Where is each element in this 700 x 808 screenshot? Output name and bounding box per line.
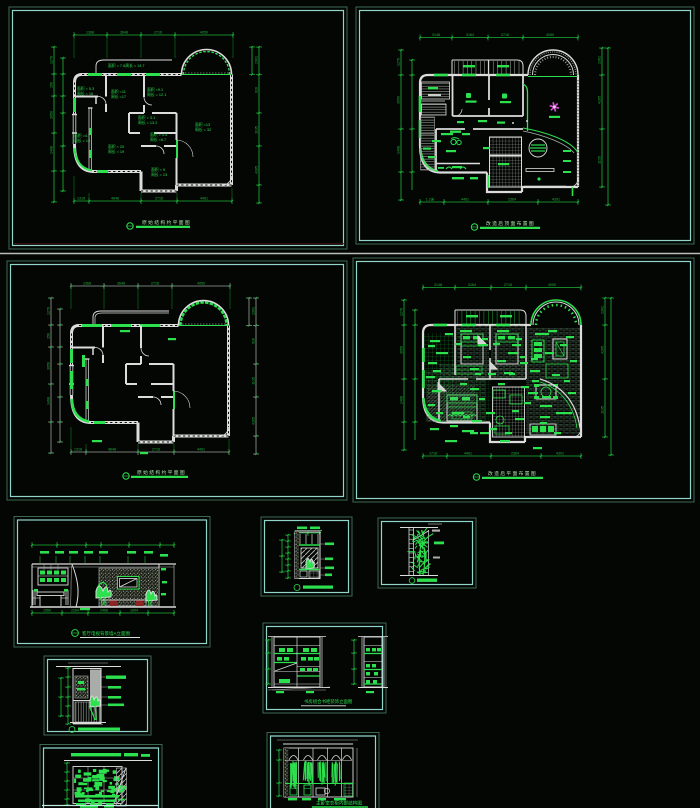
svg-text:面积 =4.7: 面积 =4.7 bbox=[74, 133, 90, 138]
svg-text:2716: 2716 bbox=[501, 33, 509, 37]
svg-text:4165: 4165 bbox=[598, 96, 602, 104]
svg-text:1560: 1560 bbox=[43, 609, 51, 613]
svg-text:3164: 3164 bbox=[466, 33, 474, 37]
svg-text:1135: 1135 bbox=[601, 406, 605, 414]
svg-text:周长 = 19: 周长 = 19 bbox=[108, 149, 124, 154]
svg-text:3050: 3050 bbox=[47, 362, 51, 370]
svg-text:1276: 1276 bbox=[47, 307, 51, 315]
svg-text:2716: 2716 bbox=[504, 283, 512, 287]
svg-text:1468: 1468 bbox=[50, 146, 54, 154]
svg-text:面积 = 4.5: 面积 = 4.5 bbox=[150, 132, 167, 137]
svg-text:4301: 4301 bbox=[556, 452, 564, 456]
svg-text:书房组合书柜装饰立面图: 书房组合书柜装饰立面图 bbox=[304, 698, 353, 705]
svg-text:2361: 2361 bbox=[598, 56, 602, 64]
svg-text:3648: 3648 bbox=[117, 282, 125, 286]
svg-text:3148: 3148 bbox=[434, 283, 442, 287]
svg-text:周长 = 12.1: 周长 = 12.1 bbox=[147, 92, 166, 97]
svg-text:4050: 4050 bbox=[197, 282, 205, 286]
svg-text:1368: 1368 bbox=[86, 31, 94, 35]
svg-text:2716: 2716 bbox=[155, 197, 163, 201]
svg-text:4165: 4165 bbox=[255, 166, 259, 174]
svg-text:4165: 4165 bbox=[252, 417, 256, 425]
svg-text:周长 = 13: 周长 = 13 bbox=[74, 138, 90, 143]
svg-text:2361: 2361 bbox=[255, 56, 259, 64]
svg-text:面积 =11: 面积 =11 bbox=[111, 89, 126, 94]
svg-text:原 始 结 构 约 平 面 图: 原 始 结 构 约 平 面 图 bbox=[142, 219, 190, 226]
svg-text:客厅电视背景墙A立面图: 客厅电视背景墙A立面图 bbox=[82, 630, 131, 637]
svg-text:4461: 4461 bbox=[461, 198, 469, 202]
svg-text:1468: 1468 bbox=[397, 146, 401, 154]
svg-text:面积 = 9: 面积 = 9 bbox=[151, 167, 165, 172]
svg-text:1276: 1276 bbox=[400, 308, 404, 316]
svg-text:2468: 2468 bbox=[100, 609, 108, 613]
svg-text:4165: 4165 bbox=[601, 346, 605, 354]
svg-text:改 造 后 平 面 布 置 图: 改 造 后 平 面 布 置 图 bbox=[488, 470, 536, 477]
svg-text:2361: 2361 bbox=[601, 306, 605, 314]
svg-text:周长 = 13.2: 周长 = 13.2 bbox=[138, 120, 157, 125]
svg-text:2264: 2264 bbox=[71, 609, 79, 613]
svg-text:面积 =13: 面积 =13 bbox=[195, 122, 210, 127]
svg-text:1318: 1318 bbox=[77, 197, 85, 201]
svg-text:2364: 2364 bbox=[508, 198, 516, 202]
svg-text:原 始 结 构 约 平 面 图: 原 始 结 构 约 平 面 图 bbox=[137, 469, 185, 476]
svg-text:1.2米: 1.2米 bbox=[426, 197, 435, 202]
svg-text:周长 = 32: 周长 = 32 bbox=[195, 127, 211, 132]
svg-text:面积 = 7.6周长 = 14.7: 面积 = 7.6周长 = 14.7 bbox=[108, 63, 145, 68]
svg-text:916: 916 bbox=[252, 338, 256, 344]
svg-text:周长 = 16: 周长 = 16 bbox=[77, 91, 93, 96]
svg-text:3164: 3164 bbox=[468, 283, 476, 287]
svg-text:1694: 1694 bbox=[130, 609, 138, 613]
svg-text:1276: 1276 bbox=[397, 58, 401, 66]
svg-text:1468: 1468 bbox=[400, 396, 404, 404]
svg-text:916: 916 bbox=[255, 87, 259, 93]
svg-text:3148: 3148 bbox=[432, 33, 440, 37]
svg-text:1135: 1135 bbox=[255, 126, 259, 134]
svg-text:3050: 3050 bbox=[397, 96, 401, 104]
svg-text:周长 = 13: 周长 = 13 bbox=[151, 172, 167, 177]
svg-text:2716: 2716 bbox=[151, 282, 159, 286]
svg-text:4461: 4461 bbox=[200, 197, 208, 201]
svg-text:150: 150 bbox=[50, 82, 54, 88]
svg-text:4050: 4050 bbox=[548, 283, 556, 287]
svg-text:4301: 4301 bbox=[552, 198, 560, 202]
svg-text:1318: 1318 bbox=[74, 448, 82, 452]
svg-text:4050: 4050 bbox=[546, 33, 554, 37]
svg-text:1718: 1718 bbox=[429, 452, 437, 456]
svg-text:面积 = 5.3: 面积 = 5.3 bbox=[77, 86, 94, 91]
svg-text:4648: 4648 bbox=[111, 197, 119, 201]
svg-text:面积 =9.1: 面积 =9.1 bbox=[147, 87, 163, 92]
svg-text:1368: 1368 bbox=[83, 282, 91, 286]
svg-text:3648: 3648 bbox=[120, 31, 128, 35]
svg-text:改 造 后 顶 面 布 置 图: 改 造 后 顶 面 布 置 图 bbox=[486, 220, 534, 227]
svg-text:4461: 4461 bbox=[464, 452, 472, 456]
svg-text:1135: 1135 bbox=[252, 377, 256, 385]
svg-text:2361: 2361 bbox=[252, 307, 256, 315]
svg-text:1276: 1276 bbox=[50, 56, 54, 64]
svg-text:4050: 4050 bbox=[200, 31, 208, 35]
svg-text:主卧室衣柜内部结构图: 主卧室衣柜内部结构图 bbox=[316, 800, 362, 807]
svg-text:2716: 2716 bbox=[154, 31, 162, 35]
svg-text:周长 =17: 周长 =17 bbox=[111, 94, 126, 99]
svg-text:4648: 4648 bbox=[108, 448, 116, 452]
svg-text:2716: 2716 bbox=[152, 448, 160, 452]
svg-text:150: 150 bbox=[47, 333, 51, 339]
svg-text:3050: 3050 bbox=[400, 346, 404, 354]
svg-text:1135: 1135 bbox=[598, 156, 602, 164]
svg-text:1468: 1468 bbox=[47, 397, 51, 405]
svg-text:2364: 2364 bbox=[511, 452, 519, 456]
svg-text:4461: 4461 bbox=[197, 448, 205, 452]
svg-text:面积 = 20: 面积 = 20 bbox=[108, 144, 124, 149]
svg-text:3050: 3050 bbox=[50, 111, 54, 119]
svg-text:周长 =6.7: 周长 =6.7 bbox=[150, 137, 166, 142]
svg-text:面积 = 3.1: 面积 = 3.1 bbox=[138, 115, 155, 120]
